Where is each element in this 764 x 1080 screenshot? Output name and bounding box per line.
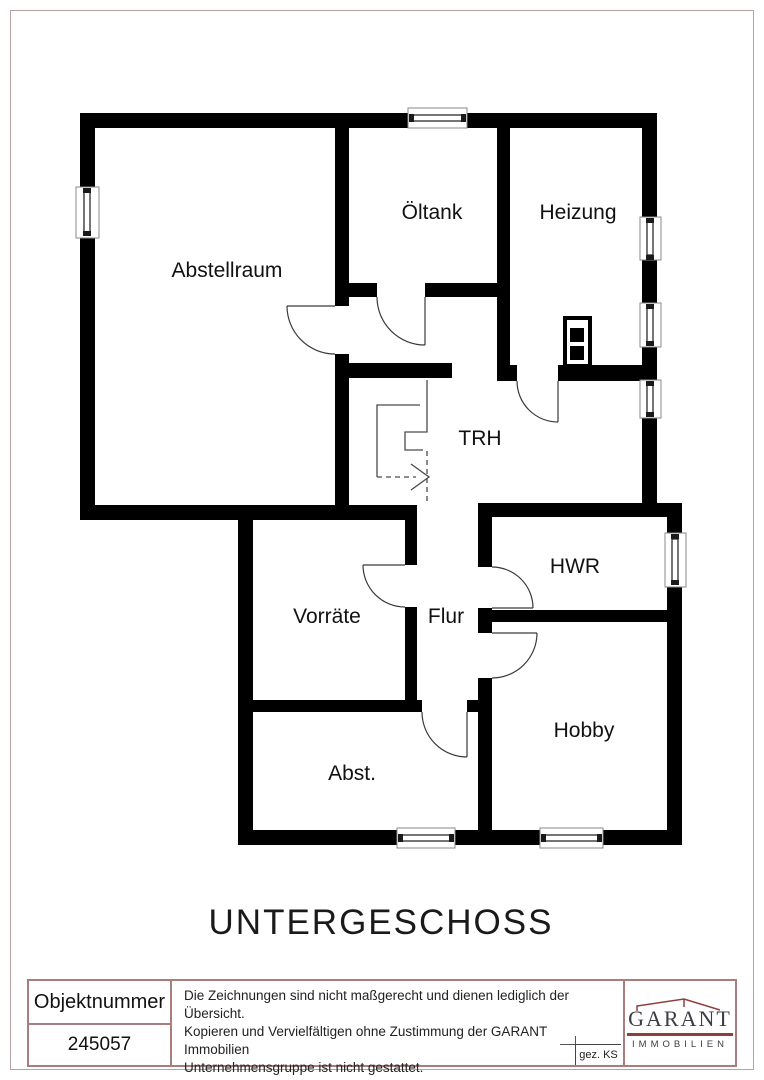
disclaimer-line-3: Unternehmensgruppe ist nicht gestattet. <box>184 1059 613 1077</box>
disclaimer-line-2: Kopieren und Vervielfältigen ohne Zustim… <box>184 1023 613 1059</box>
stairs-icon <box>377 380 429 503</box>
window-icon-bottom-abst <box>397 828 455 848</box>
object-number-value: 245057 <box>29 1025 170 1065</box>
window-icon-left <box>76 187 99 238</box>
disclaimer-cell: Die Zeichnungen sind nicht maßgerecht un… <box>172 981 625 1065</box>
room-label-abstellraum: Abstellraum <box>172 259 283 282</box>
logo-subtitle: IMMOBILIEN <box>632 1039 728 1050</box>
room-label-oeltank: Öltank <box>402 201 463 224</box>
door-icon-hwr <box>492 567 533 608</box>
window-icon-right-2 <box>640 303 661 347</box>
object-number-label: Objektnummer <box>29 981 170 1025</box>
room-label-heizung: Heizung <box>539 201 616 224</box>
logo-rule <box>627 1033 733 1036</box>
window-icon-hwr <box>665 533 686 587</box>
logo-name: GARANT <box>628 1006 732 1032</box>
door-icon-abstellraum <box>287 306 335 354</box>
door-icon-abst <box>422 712 467 757</box>
window-icon-right-1 <box>640 217 661 260</box>
door-icon-vorraete <box>363 565 405 607</box>
room-label-hwr: HWR <box>550 555 600 578</box>
object-number-cell: Objektnummer 245057 <box>29 981 172 1065</box>
chimney-icon <box>565 318 590 366</box>
room-label-flur: Flur <box>428 605 464 628</box>
plan-title: UNTERGESCHOSS <box>209 903 554 942</box>
door-icon-heizung <box>517 381 558 422</box>
window-icon-top <box>408 108 467 128</box>
logo-cell: GARANT IMMOBILIEN <box>625 981 735 1065</box>
room-label-trh: TRH <box>458 427 501 450</box>
drawn-by-tick-line <box>560 1044 576 1045</box>
drawn-by-box: gez. KS <box>575 1044 621 1065</box>
window-icon-right-3 <box>640 380 661 418</box>
room-label-hobby: Hobby <box>554 719 615 742</box>
door-icon-oeltank <box>377 297 425 345</box>
floor-plan-drawing: Abstellraum Öltank Heizung TRH Vorräte F… <box>0 0 764 979</box>
disclaimer-line-1: Die Zeichnungen sind nicht maßgerecht un… <box>184 987 613 1023</box>
door-icon-hobby <box>492 633 537 678</box>
room-label-abst: Abst. <box>328 762 376 785</box>
disclaimer-text: Die Zeichnungen sind nicht maßgerecht un… <box>184 987 613 1077</box>
room-label-vorraete: Vorräte <box>293 605 361 628</box>
title-block: Objektnummer 245057 Die Zeichnungen sind… <box>27 979 737 1067</box>
window-icon-bottom-hobby <box>540 828 603 848</box>
garant-logo: GARANT IMMOBILIEN <box>627 997 733 1050</box>
page: Abstellraum Öltank Heizung TRH Vorräte F… <box>0 0 764 1080</box>
